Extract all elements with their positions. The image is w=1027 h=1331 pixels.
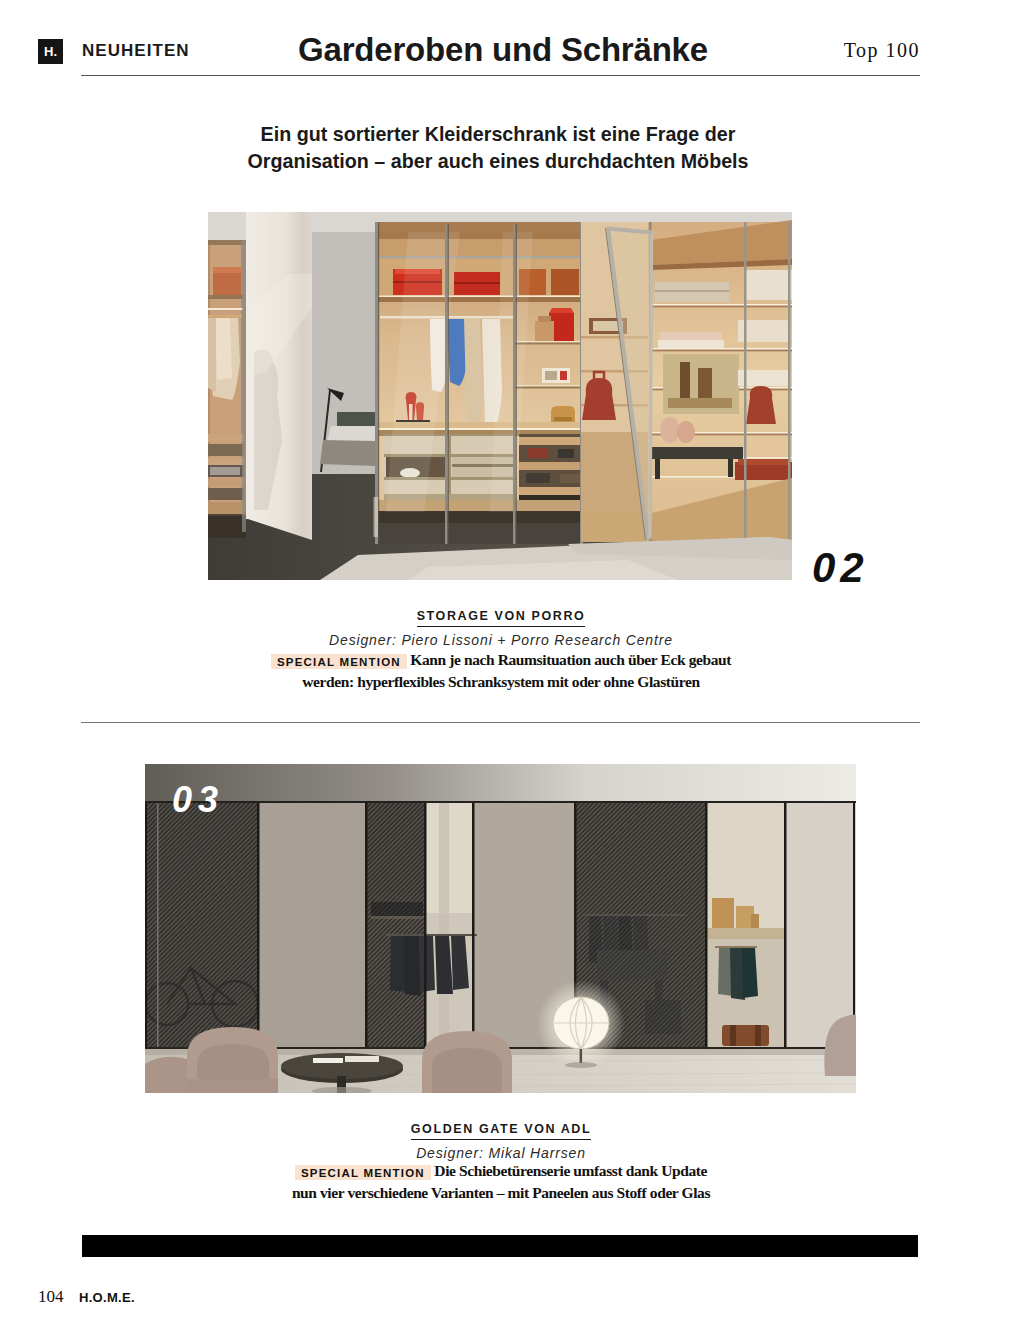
svg-text:03: 03: [172, 779, 224, 820]
